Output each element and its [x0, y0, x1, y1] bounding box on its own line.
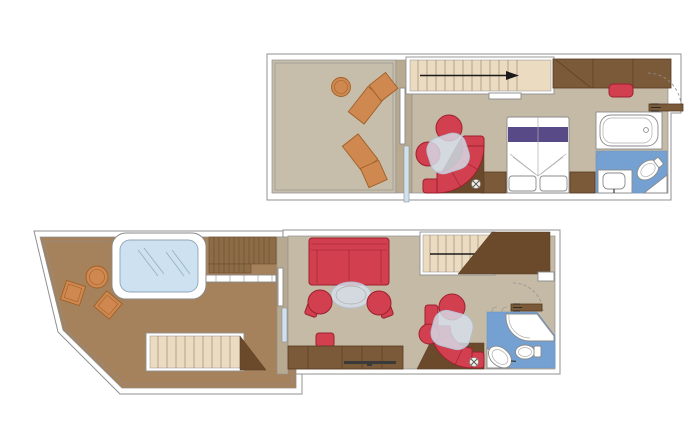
stool	[316, 333, 334, 347]
nightstand	[570, 172, 595, 193]
nightstand	[481, 172, 506, 193]
floor-symbol-icon	[470, 358, 479, 367]
upper-sliding-door-panel	[400, 88, 405, 144]
floor-plan-canvas	[0, 0, 700, 433]
washbasin	[603, 173, 625, 189]
lower-level-plan	[34, 230, 560, 394]
hall-wall-notch	[538, 272, 554, 281]
tv-stand	[367, 364, 372, 366]
bed-pillow	[509, 176, 536, 191]
terrace-deck-slats-ext	[209, 264, 251, 273]
bench-stool	[609, 84, 633, 97]
sideboard-desk	[288, 346, 403, 369]
tv-panel	[344, 361, 396, 364]
lower-sliding-door-panel	[278, 268, 283, 306]
deck-railing	[206, 275, 276, 282]
whirlpool-tub	[120, 240, 198, 292]
bathtub	[600, 115, 658, 146]
upper-stairs-lip	[489, 93, 521, 99]
floor-plan-svg	[0, 0, 700, 433]
terrace-staircase-treads-area	[150, 336, 240, 368]
bed-pillow	[540, 176, 567, 191]
toilet	[516, 345, 542, 359]
upper-level-plan	[267, 54, 683, 202]
floor-symbol-icon	[472, 180, 481, 189]
bathtub-drain	[644, 128, 649, 133]
lower-sliding-door-glass	[282, 308, 287, 342]
upper-sliding-door-glass	[404, 146, 409, 202]
